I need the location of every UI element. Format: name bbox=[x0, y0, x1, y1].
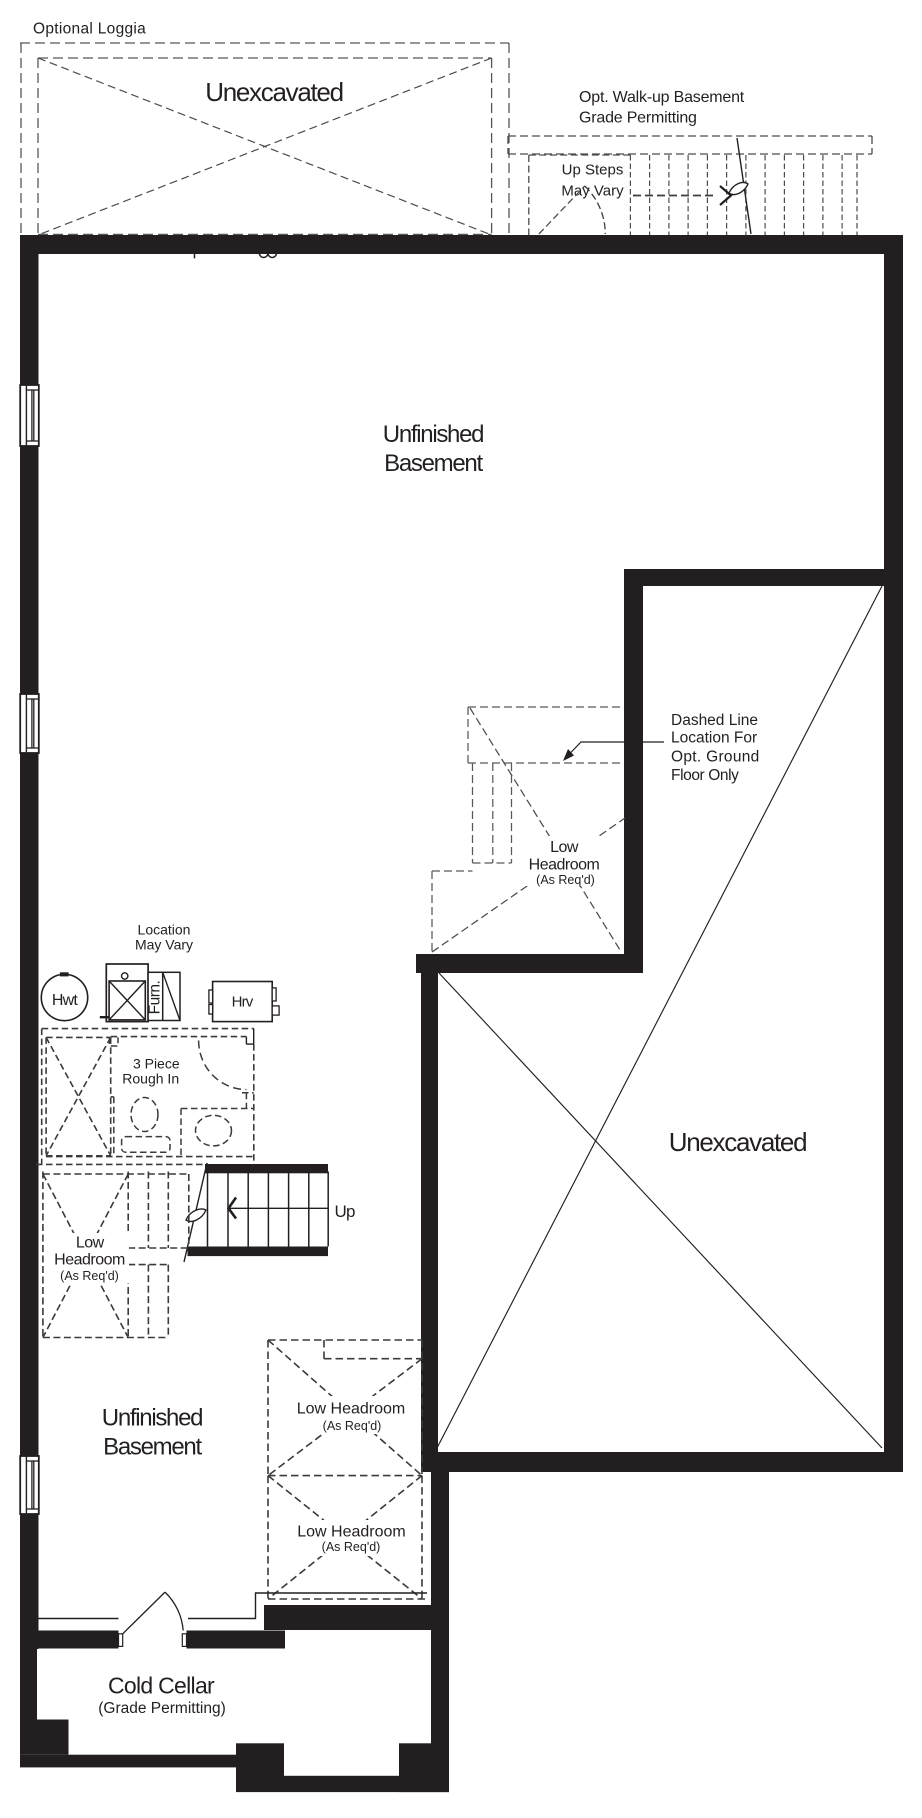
svg-text:May Vary: May Vary bbox=[561, 182, 624, 199]
svg-text:Headroom: Headroom bbox=[54, 1252, 125, 1269]
svg-text:Unfinished: Unfinished bbox=[383, 421, 483, 448]
svg-text:(As Req'd): (As Req'd) bbox=[536, 873, 595, 887]
svg-text:Low Headroom: Low Headroom bbox=[297, 1524, 406, 1541]
svg-text:(As Req'd): (As Req'd) bbox=[322, 1540, 381, 1554]
svg-text:Floor Only: Floor Only bbox=[671, 767, 739, 784]
svg-text:Rough In: Rough In bbox=[122, 1070, 179, 1086]
svg-text:Furn.: Furn. bbox=[147, 981, 164, 1015]
svg-text:Low: Low bbox=[76, 1234, 105, 1251]
svg-text:Opt. Walk-up Basement: Opt. Walk-up Basement bbox=[579, 89, 745, 106]
svg-text:Basement: Basement bbox=[384, 450, 483, 477]
svg-text:Opt. Ground: Opt. Ground bbox=[671, 749, 760, 766]
svg-text:Low Headroom: Low Headroom bbox=[297, 1401, 406, 1418]
svg-text:Hrv: Hrv bbox=[232, 994, 254, 1011]
svg-text:Optional Loggia: Optional Loggia bbox=[33, 21, 146, 38]
svg-text:Grade Permitting: Grade Permitting bbox=[579, 110, 697, 127]
svg-text:(Grade Permitting): (Grade Permitting) bbox=[98, 1700, 225, 1717]
svg-text:Basement: Basement bbox=[103, 1434, 202, 1461]
svg-text:3 Piece: 3 Piece bbox=[133, 1055, 180, 1071]
svg-text:Hwt: Hwt bbox=[52, 992, 79, 1009]
svg-text:Location: Location bbox=[138, 922, 191, 938]
svg-text:(As Req'd): (As Req'd) bbox=[323, 1419, 382, 1433]
svg-text:May Vary: May Vary bbox=[135, 937, 193, 953]
svg-text:Unexcavated: Unexcavated bbox=[205, 77, 342, 107]
svg-text:Up Steps: Up Steps bbox=[562, 162, 624, 179]
svg-text:Cold Cellar: Cold Cellar bbox=[108, 1673, 215, 1699]
svg-text:Dashed Line: Dashed Line bbox=[671, 712, 758, 729]
svg-text:Up: Up bbox=[335, 1202, 355, 1221]
svg-text:(As Req'd): (As Req'd) bbox=[60, 1269, 119, 1283]
svg-text:Location For: Location For bbox=[671, 730, 757, 747]
svg-text:Unfinished: Unfinished bbox=[102, 1405, 202, 1432]
svg-text:Unexcavated: Unexcavated bbox=[669, 1127, 806, 1157]
svg-text:Headroom: Headroom bbox=[529, 857, 600, 874]
svg-text:Low: Low bbox=[550, 839, 579, 856]
